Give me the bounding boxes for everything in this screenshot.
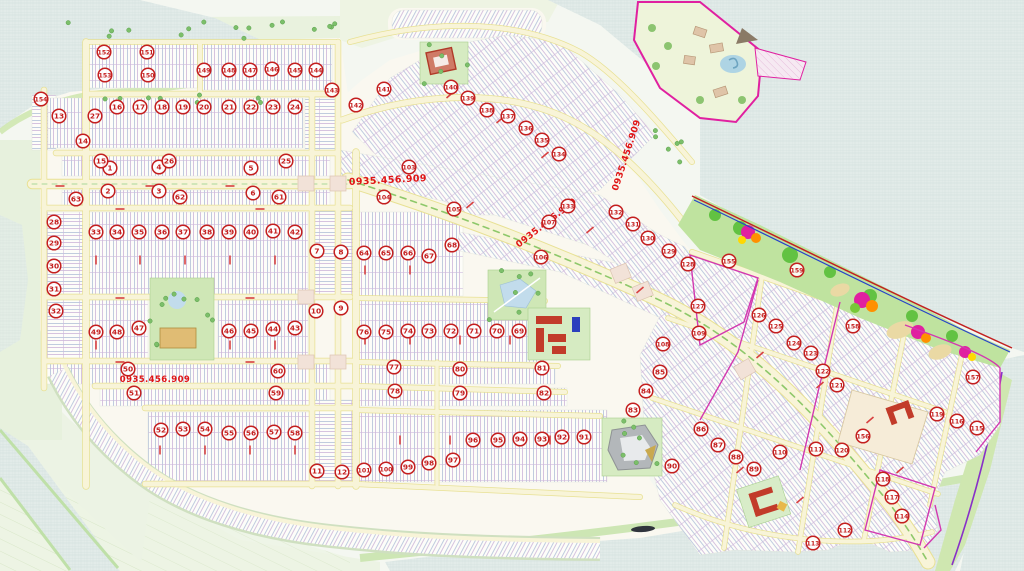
block-marker-76[interactable]: 76 (357, 325, 371, 339)
svg-text:152: 152 (98, 50, 111, 57)
block-marker-86[interactable]: 86 (694, 422, 708, 436)
block-marker-88[interactable]: 88 (729, 450, 743, 464)
svg-text:105: 105 (448, 207, 461, 214)
svg-text:150: 150 (142, 73, 156, 80)
svg-text:79: 79 (455, 389, 465, 398)
block-marker-15[interactable]: 15 (94, 154, 108, 168)
west-school-building (160, 328, 196, 348)
north-school (420, 42, 468, 84)
block-marker-117[interactable]: 117 (885, 490, 899, 504)
svg-text:116: 116 (951, 419, 964, 426)
svg-text:62: 62 (175, 193, 185, 202)
svg-text:38: 38 (202, 228, 212, 237)
block-marker-98[interactable]: 98 (422, 456, 436, 470)
svg-text:132: 132 (610, 210, 623, 217)
block-marker-28[interactable]: 28 (47, 215, 61, 229)
block-marker-120[interactable]: 120 (835, 443, 849, 457)
svg-text:112: 112 (839, 528, 852, 535)
svg-text:142: 142 (350, 103, 363, 110)
svg-text:1: 1 (107, 164, 112, 173)
svg-text:7: 7 (314, 247, 319, 256)
svg-text:91: 91 (579, 433, 589, 442)
block-marker-16[interactable]: 16 (110, 100, 124, 114)
block-marker-74[interactable]: 74 (401, 324, 415, 338)
block-marker-113[interactable]: 113 (806, 536, 820, 550)
block-marker-95[interactable]: 95 (491, 433, 505, 447)
block-marker-27[interactable]: 27 (88, 109, 102, 123)
svg-text:3: 3 (156, 187, 161, 196)
svg-text:85: 85 (655, 368, 665, 377)
block-marker-157[interactable]: 157 (966, 370, 980, 384)
block-marker-89[interactable]: 89 (747, 462, 761, 476)
block-marker-132[interactable]: 132 (609, 205, 623, 219)
block-marker-45[interactable]: 45 (244, 324, 258, 338)
block-marker-12[interactable]: 12 (335, 465, 349, 479)
svg-text:50: 50 (123, 365, 133, 374)
block-marker-71[interactable]: 71 (467, 324, 481, 338)
svg-text:131: 131 (627, 222, 640, 229)
svg-text:133: 133 (562, 204, 575, 211)
svg-text:57: 57 (269, 428, 279, 437)
block-marker-54[interactable]: 54 (198, 422, 212, 436)
svg-text:14: 14 (78, 137, 88, 146)
block-marker-96[interactable]: 96 (466, 433, 480, 447)
block-marker-106[interactable]: 106 (534, 250, 548, 264)
block-marker-114[interactable]: 114 (895, 509, 909, 523)
block-marker-91[interactable]: 91 (577, 430, 591, 444)
svg-text:158: 158 (847, 324, 860, 331)
block-marker-64[interactable]: 64 (357, 246, 371, 260)
block-marker-144[interactable]: 144 (309, 63, 323, 77)
block-marker-141[interactable]: 141 (377, 82, 391, 96)
svg-text:104: 104 (378, 195, 392, 202)
block-marker-35[interactable]: 35 (132, 225, 146, 239)
svg-text:45: 45 (246, 327, 256, 336)
block-marker-116[interactable]: 116 (950, 414, 964, 428)
block-marker-39[interactable]: 39 (222, 225, 236, 239)
block-marker-34[interactable]: 34 (110, 225, 124, 239)
block-marker-149[interactable]: 149 (197, 63, 211, 77)
block-marker-8[interactable]: 8 (334, 245, 348, 259)
svg-text:35: 35 (134, 228, 144, 237)
svg-text:146: 146 (266, 67, 279, 74)
block-marker-131[interactable]: 131 (626, 217, 640, 231)
block-marker-30[interactable]: 30 (47, 259, 61, 273)
block-marker-36[interactable]: 36 (155, 225, 169, 239)
block-marker-69[interactable]: 69 (512, 324, 526, 338)
blue-building (572, 317, 580, 332)
svg-text:147: 147 (244, 68, 257, 75)
svg-text:49: 49 (91, 328, 101, 337)
block-marker-21[interactable]: 21 (222, 100, 236, 114)
svg-text:96: 96 (468, 436, 478, 445)
block-marker-60[interactable]: 60 (271, 364, 285, 378)
svg-text:46: 46 (224, 327, 234, 336)
svg-text:148: 148 (223, 68, 236, 75)
svg-text:33: 33 (91, 228, 101, 237)
block-marker-80[interactable]: 80 (453, 362, 467, 376)
block-marker-2[interactable]: 2 (101, 184, 115, 198)
block-marker-19[interactable]: 19 (176, 100, 190, 114)
svg-text:137: 137 (502, 114, 515, 121)
block-marker-110[interactable]: 110 (773, 445, 787, 459)
west-park (150, 278, 214, 360)
svg-text:106: 106 (535, 255, 548, 262)
block-marker-84[interactable]: 84 (639, 384, 653, 398)
block-marker-82[interactable]: 82 (537, 386, 551, 400)
svg-text:53: 53 (178, 425, 188, 434)
svg-text:29: 29 (49, 239, 59, 248)
svg-text:55: 55 (224, 429, 234, 438)
block-marker-18[interactable]: 18 (155, 100, 169, 114)
svg-text:125: 125 (770, 324, 783, 331)
svg-text:8: 8 (338, 248, 343, 257)
svg-text:82: 82 (539, 389, 549, 398)
block-marker-129[interactable]: 129 (662, 244, 676, 258)
svg-text:159: 159 (791, 268, 804, 275)
block-marker-43[interactable]: 43 (288, 321, 302, 335)
svg-text:64: 64 (359, 249, 369, 258)
svg-text:75: 75 (381, 328, 391, 337)
block-marker-13[interactable]: 13 (52, 109, 66, 123)
block-marker-115[interactable]: 115 (970, 421, 984, 435)
svg-text:58: 58 (290, 429, 300, 438)
svg-text:153: 153 (99, 73, 112, 80)
block-marker-92[interactable]: 92 (555, 430, 569, 444)
block-marker-23[interactable]: 23 (266, 100, 280, 114)
block-marker-25[interactable]: 25 (279, 154, 293, 168)
svg-text:18: 18 (157, 103, 167, 112)
block-marker-101[interactable]: 101 (357, 463, 371, 477)
svg-text:109: 109 (693, 331, 706, 338)
svg-text:115: 115 (971, 426, 984, 433)
block-marker-9[interactable]: 9 (334, 301, 348, 315)
svg-text:61: 61 (274, 193, 284, 202)
svg-text:100: 100 (380, 467, 394, 474)
svg-text:37: 37 (178, 228, 188, 237)
block-marker-51[interactable]: 51 (127, 386, 141, 400)
block-marker-118[interactable]: 118 (876, 472, 890, 486)
svg-text:19: 19 (178, 103, 188, 112)
block-marker-153[interactable]: 153 (98, 68, 112, 82)
block-marker-33[interactable]: 33 (89, 225, 103, 239)
svg-text:98: 98 (424, 459, 434, 468)
block-marker-154[interactable]: 154 (34, 92, 48, 106)
block-marker-61[interactable]: 61 (272, 190, 286, 204)
map-canvas[interactable]: 0935.456.9090935.456.9090935.456.9090935… (0, 0, 1024, 571)
block-marker-58[interactable]: 58 (288, 426, 302, 440)
svg-text:87: 87 (713, 441, 723, 450)
svg-text:22: 22 (246, 103, 256, 112)
svg-text:144: 144 (310, 68, 324, 75)
block-marker-41[interactable]: 41 (266, 224, 280, 238)
svg-text:107: 107 (543, 220, 556, 227)
block-marker-128[interactable]: 128 (681, 257, 695, 271)
block-marker-119[interactable]: 119 (930, 407, 944, 421)
block-marker-77[interactable]: 77 (387, 360, 401, 374)
block-marker-152[interactable]: 152 (97, 45, 111, 59)
svg-text:127: 127 (692, 304, 705, 311)
svg-text:60: 60 (273, 367, 283, 376)
svg-text:141: 141 (378, 87, 391, 94)
block-marker-99[interactable]: 99 (401, 460, 415, 474)
block-marker-127[interactable]: 127 (691, 299, 705, 313)
block-marker-14[interactable]: 14 (76, 134, 90, 148)
block-marker-49[interactable]: 49 (89, 325, 103, 339)
svg-text:154: 154 (35, 97, 49, 104)
svg-text:124: 124 (788, 341, 802, 348)
svg-text:156: 156 (857, 434, 870, 441)
svg-text:135: 135 (536, 138, 549, 145)
svg-text:28: 28 (49, 218, 59, 227)
block-marker-78[interactable]: 78 (388, 384, 402, 398)
svg-text:27: 27 (90, 112, 100, 121)
svg-text:21: 21 (224, 103, 234, 112)
block-marker-79[interactable]: 79 (453, 386, 467, 400)
block-marker-125[interactable]: 125 (769, 319, 783, 333)
block-marker-108[interactable]: 108 (656, 337, 670, 351)
block-marker-46[interactable]: 46 (222, 324, 236, 338)
block-marker-97[interactable]: 97 (446, 453, 460, 467)
block-marker-93[interactable]: 93 (535, 432, 549, 446)
svg-text:114: 114 (896, 514, 910, 521)
block-marker-124[interactable]: 124 (787, 336, 801, 350)
svg-text:63: 63 (71, 195, 81, 204)
block-marker-111[interactable]: 111 (809, 442, 823, 456)
svg-text:39: 39 (224, 228, 234, 237)
svg-text:78: 78 (390, 387, 400, 396)
block-marker-40[interactable]: 40 (244, 225, 258, 239)
svg-text:134: 134 (553, 152, 567, 159)
block-marker-136[interactable]: 136 (519, 121, 533, 135)
block-marker-109[interactable]: 109 (692, 326, 706, 340)
block-marker-70[interactable]: 70 (490, 324, 504, 338)
block-marker-62[interactable]: 62 (173, 190, 187, 204)
block-marker-155[interactable]: 155 (722, 254, 736, 268)
block-marker-87[interactable]: 87 (711, 438, 725, 452)
block-marker-10[interactable]: 10 (309, 304, 323, 318)
svg-text:157: 157 (967, 375, 980, 382)
svg-text:128: 128 (682, 262, 695, 269)
block-marker-123[interactable]: 123 (804, 346, 818, 360)
svg-text:20: 20 (199, 103, 209, 112)
svg-text:74: 74 (403, 327, 413, 336)
svg-text:23: 23 (268, 103, 278, 112)
svg-text:140: 140 (445, 85, 459, 92)
block-marker-130[interactable]: 130 (641, 231, 655, 245)
block-marker-112[interactable]: 112 (838, 523, 852, 537)
svg-text:15: 15 (96, 157, 106, 166)
block-marker-47[interactable]: 47 (132, 321, 146, 335)
block-marker-81[interactable]: 81 (535, 361, 549, 375)
svg-text:83: 83 (628, 406, 638, 415)
block-marker-146[interactable]: 146 (265, 62, 279, 76)
svg-text:77: 77 (389, 363, 399, 372)
block-marker-73[interactable]: 73 (422, 324, 436, 338)
block-marker-83[interactable]: 83 (626, 403, 640, 417)
block-marker-26[interactable]: 26 (162, 154, 176, 168)
svg-text:25: 25 (281, 157, 291, 166)
block-marker-121[interactable]: 121 (830, 378, 844, 392)
svg-text:16: 16 (112, 103, 122, 112)
block-marker-133[interactable]: 133 (561, 199, 575, 213)
block-marker-147[interactable]: 147 (243, 63, 257, 77)
svg-text:73: 73 (424, 327, 434, 336)
block-marker-24[interactable]: 24 (288, 100, 302, 114)
svg-text:138: 138 (481, 108, 494, 115)
svg-text:47: 47 (134, 324, 144, 333)
svg-text:12: 12 (337, 468, 347, 477)
block-marker-143[interactable]: 143 (325, 83, 339, 97)
block-marker-66[interactable]: 66 (401, 246, 415, 260)
block-marker-50[interactable]: 50 (121, 362, 135, 376)
svg-text:155: 155 (723, 259, 736, 266)
block-marker-22[interactable]: 22 (244, 100, 258, 114)
block-marker-104[interactable]: 104 (377, 190, 391, 204)
svg-text:76: 76 (359, 328, 369, 337)
svg-text:103: 103 (403, 165, 416, 172)
block-marker-37[interactable]: 37 (176, 225, 190, 239)
svg-text:54: 54 (200, 425, 210, 434)
block-marker-148[interactable]: 148 (222, 63, 236, 77)
block-marker-48[interactable]: 48 (110, 325, 124, 339)
block-marker-140[interactable]: 140 (444, 80, 458, 94)
block-marker-159[interactable]: 159 (790, 263, 804, 277)
block-marker-145[interactable]: 145 (288, 63, 302, 77)
svg-text:6: 6 (250, 189, 255, 198)
block-marker-90[interactable]: 90 (665, 459, 679, 473)
block-marker-56[interactable]: 56 (244, 426, 258, 440)
svg-text:86: 86 (696, 425, 706, 434)
block-marker-68[interactable]: 68 (445, 238, 459, 252)
block-marker-103[interactable]: 103 (402, 160, 416, 174)
svg-text:36: 36 (157, 228, 167, 237)
block-marker-134[interactable]: 134 (552, 147, 566, 161)
svg-text:92: 92 (557, 433, 567, 442)
block-marker-142[interactable]: 142 (349, 98, 363, 112)
block-marker-3[interactable]: 3 (152, 184, 166, 198)
block-marker-31[interactable]: 31 (47, 282, 61, 296)
svg-text:70: 70 (492, 327, 502, 336)
block-marker-5[interactable]: 5 (244, 161, 258, 175)
svg-text:80: 80 (455, 365, 465, 374)
svg-text:65: 65 (381, 249, 391, 258)
central-school (528, 308, 590, 360)
block-marker-100[interactable]: 100 (379, 462, 393, 476)
svg-text:34: 34 (112, 228, 122, 237)
block-marker-53[interactable]: 53 (176, 422, 190, 436)
block-marker-44[interactable]: 44 (266, 322, 280, 336)
block-marker-75[interactable]: 75 (379, 325, 393, 339)
svg-text:84: 84 (641, 387, 651, 396)
svg-text:30: 30 (49, 262, 59, 271)
svg-text:90: 90 (667, 462, 677, 471)
svg-text:69: 69 (514, 327, 524, 336)
svg-text:51: 51 (129, 389, 139, 398)
svg-text:2: 2 (105, 187, 110, 196)
svg-text:81: 81 (537, 364, 547, 373)
svg-text:44: 44 (268, 325, 278, 334)
svg-text:111: 111 (810, 447, 823, 454)
block-marker-137[interactable]: 137 (501, 109, 515, 123)
block-marker-63[interactable]: 63 (69, 192, 83, 206)
svg-text:52: 52 (156, 426, 166, 435)
block-marker-126[interactable]: 126 (752, 308, 766, 322)
phone-watermark: 0935.456.909 (120, 375, 190, 385)
block-marker-150[interactable]: 150 (141, 68, 155, 82)
block-marker-59[interactable]: 59 (269, 386, 283, 400)
block-marker-94[interactable]: 94 (513, 432, 527, 446)
svg-text:13: 13 (54, 112, 64, 121)
block-marker-67[interactable]: 67 (422, 249, 436, 263)
svg-text:93: 93 (537, 435, 547, 444)
svg-text:59: 59 (271, 389, 281, 398)
block-marker-11[interactable]: 11 (310, 464, 324, 478)
svg-text:66: 66 (403, 249, 413, 258)
block-marker-52[interactable]: 52 (154, 423, 168, 437)
svg-text:101: 101 (358, 468, 371, 475)
svg-text:120: 120 (836, 448, 850, 455)
svg-text:32: 32 (51, 307, 61, 316)
svg-text:88: 88 (731, 453, 741, 462)
svg-text:9: 9 (338, 304, 343, 313)
block-marker-158[interactable]: 158 (846, 319, 860, 333)
svg-text:119: 119 (931, 412, 944, 419)
block-marker-156[interactable]: 156 (856, 429, 870, 443)
block-marker-135[interactable]: 135 (535, 133, 549, 147)
block-marker-151[interactable]: 151 (140, 45, 154, 59)
block-marker-7[interactable]: 7 (310, 244, 324, 258)
svg-text:67: 67 (424, 252, 434, 261)
svg-text:130: 130 (642, 236, 656, 243)
svg-text:118: 118 (877, 477, 890, 484)
block-marker-17[interactable]: 17 (133, 100, 147, 114)
svg-text:48: 48 (112, 328, 122, 337)
svg-text:11: 11 (312, 467, 322, 476)
block-marker-122[interactable]: 122 (816, 364, 830, 378)
svg-text:56: 56 (246, 429, 256, 438)
svg-text:43: 43 (290, 324, 300, 333)
block-marker-85[interactable]: 85 (653, 365, 667, 379)
block-marker-57[interactable]: 57 (267, 425, 281, 439)
svg-text:71: 71 (469, 327, 479, 336)
svg-text:5: 5 (248, 164, 253, 173)
svg-text:108: 108 (657, 342, 670, 349)
svg-text:40: 40 (246, 228, 256, 237)
block-marker-55[interactable]: 55 (222, 426, 236, 440)
block-marker-20[interactable]: 20 (197, 100, 211, 114)
block-marker-6[interactable]: 6 (246, 186, 260, 200)
svg-text:41: 41 (268, 227, 278, 236)
block-marker-32[interactable]: 32 (49, 304, 63, 318)
svg-text:89: 89 (749, 465, 759, 474)
svg-text:145: 145 (289, 68, 302, 75)
block-marker-38[interactable]: 38 (200, 225, 214, 239)
block-marker-72[interactable]: 72 (444, 324, 458, 338)
block-marker-42[interactable]: 42 (288, 225, 302, 239)
block-marker-107[interactable]: 107 (542, 215, 556, 229)
block-marker-105[interactable]: 105 (447, 202, 461, 216)
svg-text:72: 72 (446, 327, 456, 336)
master-plan-map[interactable]: 0935.456.9090935.456.9090935.456.9090935… (0, 0, 1024, 571)
svg-text:126: 126 (753, 313, 766, 320)
block-marker-65[interactable]: 65 (379, 246, 393, 260)
svg-text:117: 117 (886, 495, 899, 502)
block-marker-139[interactable]: 139 (461, 91, 475, 105)
block-marker-138[interactable]: 138 (480, 103, 494, 117)
block-marker-29[interactable]: 29 (47, 236, 61, 250)
svg-text:123: 123 (805, 351, 818, 358)
